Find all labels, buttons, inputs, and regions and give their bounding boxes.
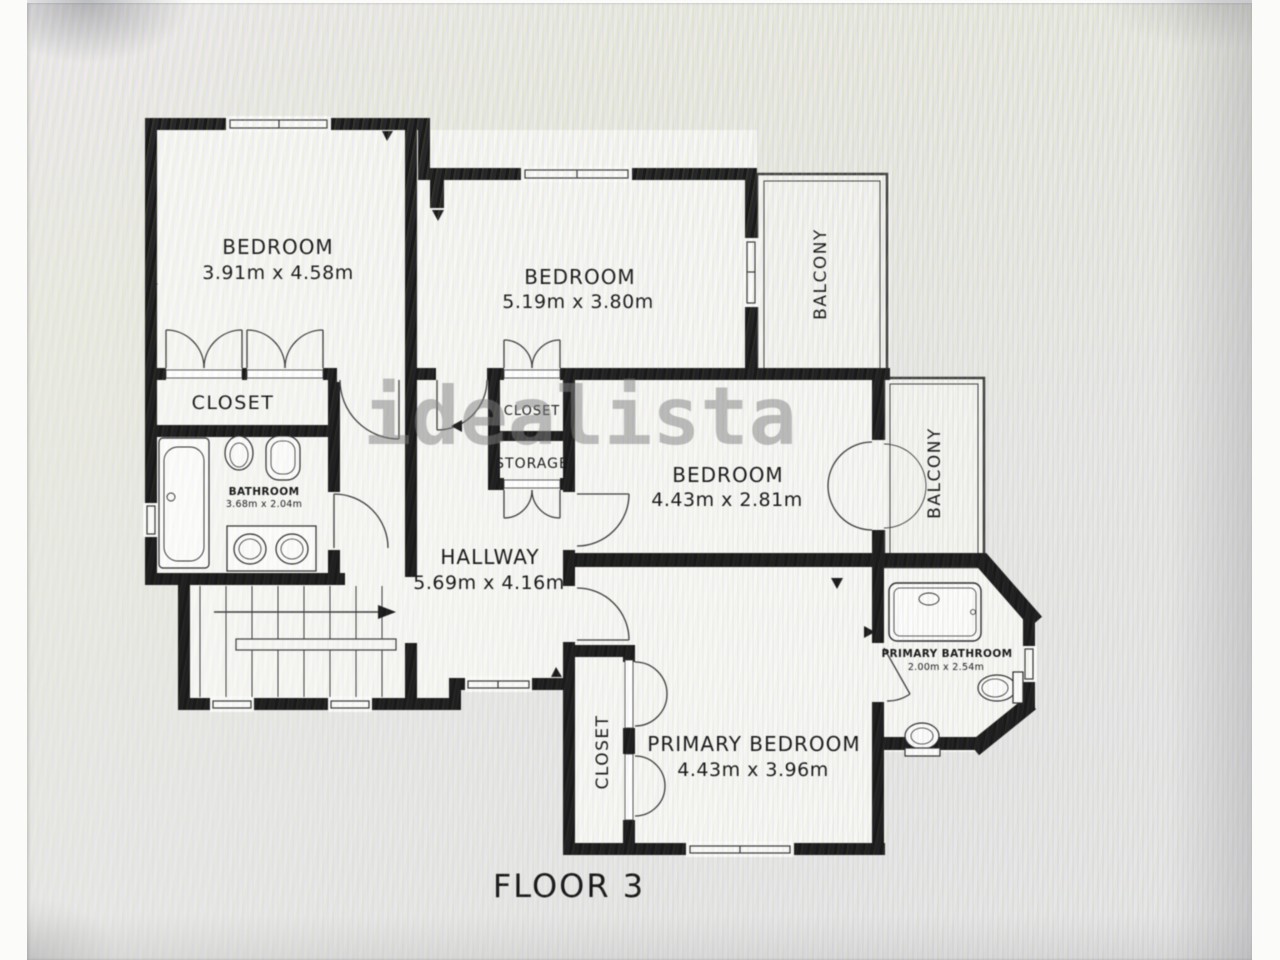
bedroom-top-middle-label: BEDROOM [524, 265, 635, 289]
bedroom-top-middle-dimensions: 5.19m x 3.80m [502, 291, 653, 313]
hallway-label: HALLWAY [440, 545, 539, 569]
closet-primary-label: CLOSET [593, 714, 613, 789]
primary-bathroom-label: PRIMARY BATHROOM [881, 648, 1012, 660]
bedroom-top-left-label: BEDROOM [222, 235, 333, 259]
bathroom-dimensions: 3.68m x 2.04m [226, 499, 302, 510]
bedroom-middle-right-label: BEDROOM [672, 463, 783, 487]
bedroom-middle-right-dimensions: 4.43m x 2.81m [651, 489, 802, 511]
balcony-right-label: BALCONY [925, 427, 945, 519]
balcony-top-label: BALCONY [811, 228, 831, 320]
primary-bedroom-label: PRIMARY BEDROOM [647, 732, 860, 756]
idealista-watermark: idealista [363, 370, 796, 463]
bedroom-top-left-dimensions: 3.91m x 4.58m [202, 262, 353, 284]
hallway-dimensions: 5.69m x 4.16m [413, 572, 564, 594]
floorplan-photo: BEDROOM 3.91m x 4.58m BEDROOM 5.19m x 3.… [0, 0, 1280, 960]
primary-bedroom-dimensions: 4.43m x 3.96m [677, 759, 828, 781]
closet-top-left-label: CLOSET [192, 392, 275, 414]
floor-plan-svg: BEDROOM 3.91m x 4.58m BEDROOM 5.19m x 3.… [0, 0, 1280, 960]
primary-bathroom-dimensions: 2.00m x 2.54m [908, 662, 984, 673]
bathroom-label: BATHROOM [229, 486, 300, 498]
floor-title: FLOOR 3 [493, 867, 645, 905]
